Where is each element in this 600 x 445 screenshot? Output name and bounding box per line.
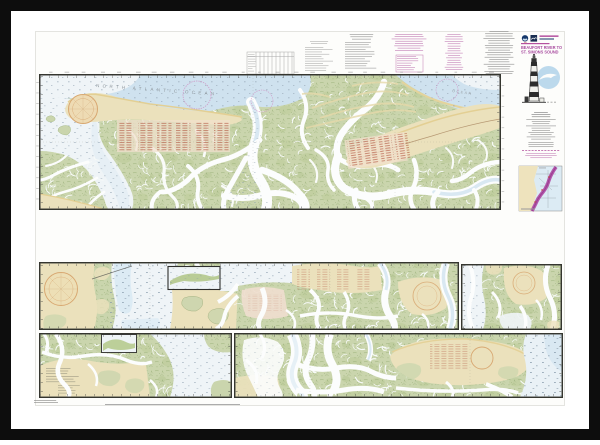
svg-text:ST. SIMONS SOUND: ST. SIMONS SOUND [521, 50, 559, 56]
